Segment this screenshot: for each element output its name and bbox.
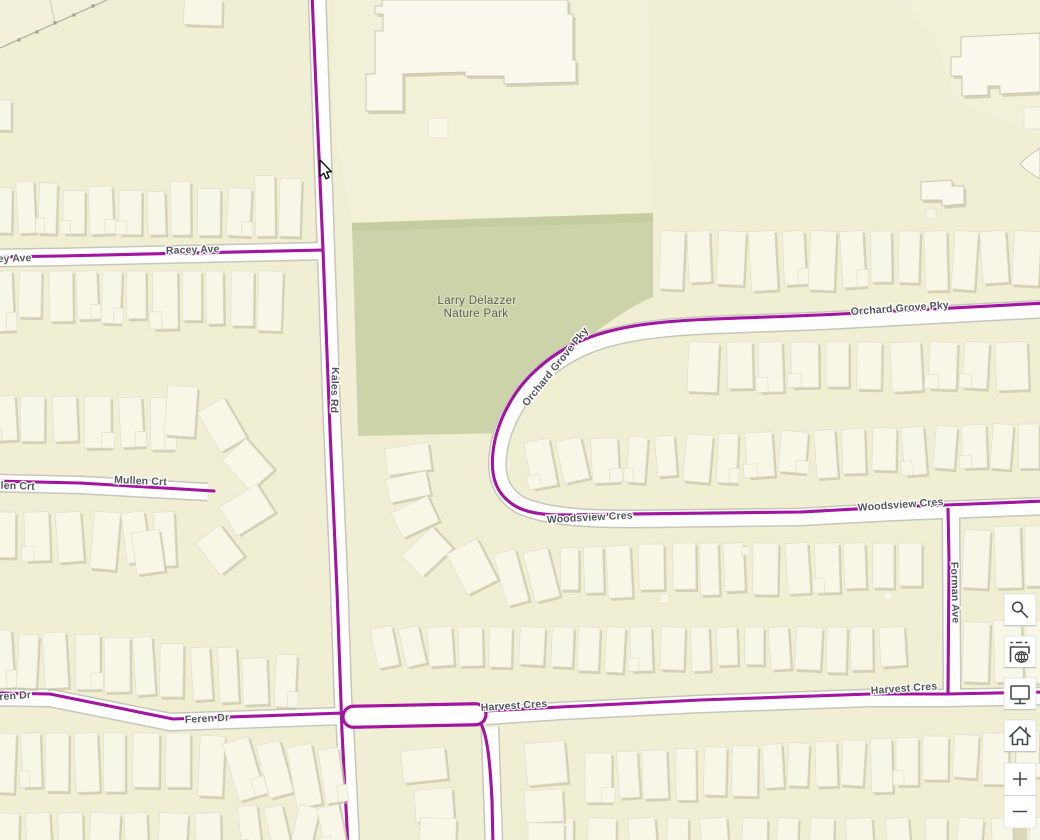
svg-text:Racey Ave: Racey Ave <box>0 252 32 266</box>
svg-text:Forman Ave: Forman Ave <box>948 562 962 624</box>
svg-text:Larry Delazzer: Larry Delazzer <box>438 295 517 307</box>
svg-text:Nature Park: Nature Park <box>444 308 509 320</box>
svg-text:Mullen Crt: Mullen Crt <box>0 479 35 493</box>
svg-text:Kales Rd: Kales Rd <box>328 367 341 413</box>
svg-text:Racey Ave: Racey Ave <box>166 243 220 257</box>
svg-text:Mullen Crt: Mullen Crt <box>114 474 168 488</box>
svg-text:Feren Dr: Feren Dr <box>185 712 230 726</box>
